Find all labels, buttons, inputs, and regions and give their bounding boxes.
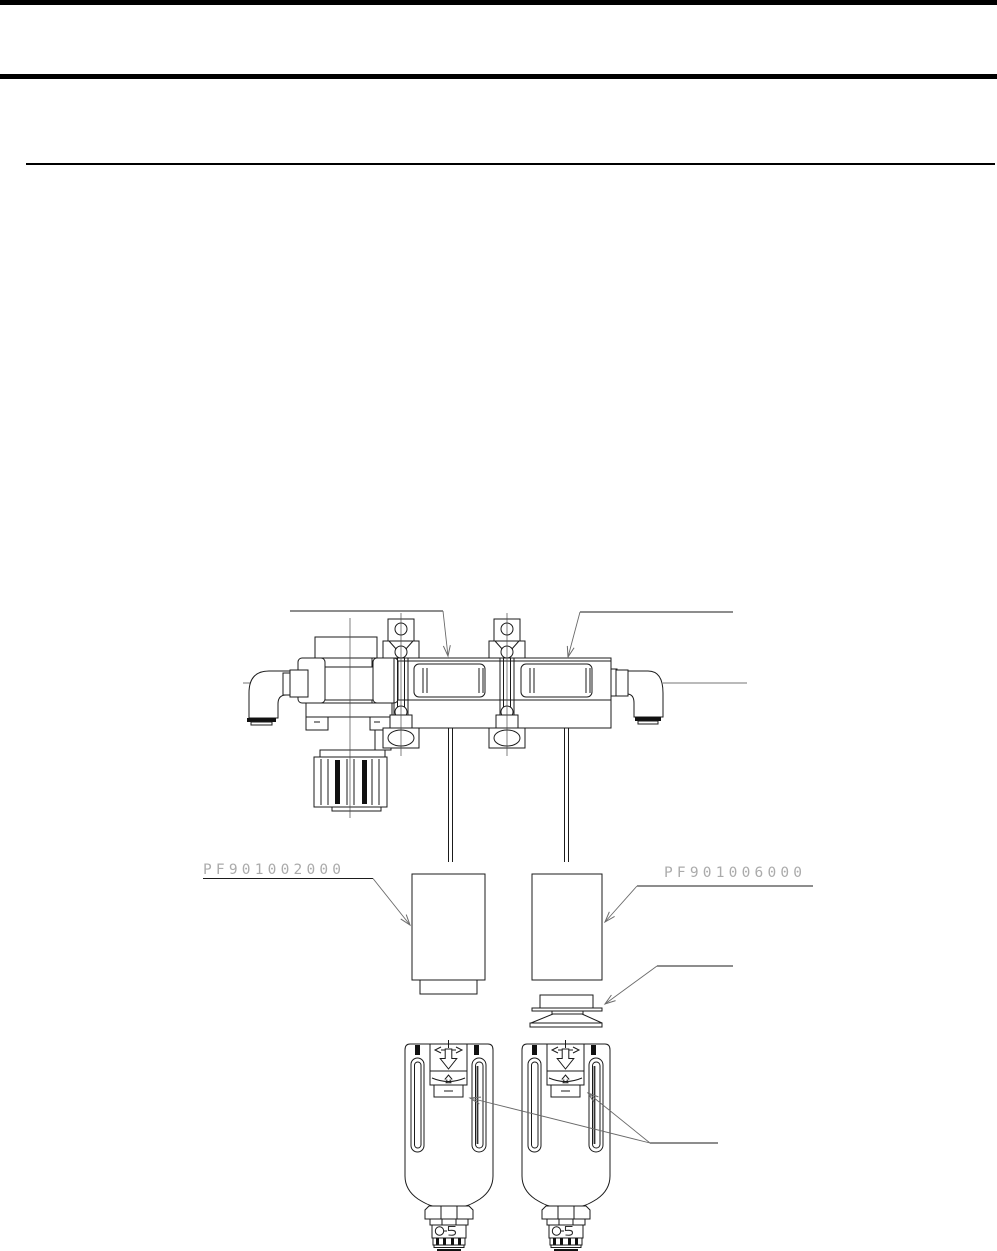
manifold-assembly [243,611,747,862]
regulator [298,637,398,811]
filter-element-left [412,874,485,994]
manual-page: PF901002000 PF901006000 [0,0,997,1251]
regulator-knob [314,757,387,811]
part-number-left: PF901002000 [203,862,345,878]
parts-diagram: PF901002000 PF901006000 [0,0,997,1251]
filter-bowl-right [522,1040,610,1251]
filter-bowl-left [405,1040,493,1251]
bowl-drain [425,1206,473,1251]
filter-element-right [532,874,602,980]
part-number-right: PF901006000 [664,865,806,881]
right-elbow-fitting [616,670,663,724]
left-elbow-fitting [247,670,308,725]
bowl-latch [430,1040,467,1097]
part-labels: PF901002000 PF901006000 [203,862,813,925]
